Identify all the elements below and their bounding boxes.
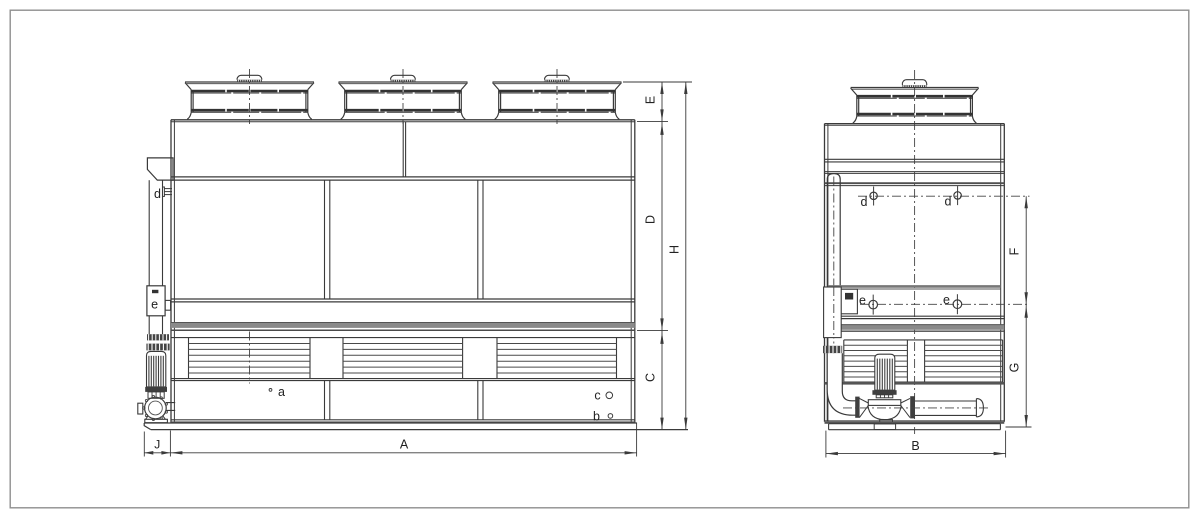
svg-text:B: B [911, 439, 919, 453]
svg-text:b: b [593, 410, 600, 424]
svg-text:C: C [644, 373, 658, 382]
svg-text:J: J [154, 438, 160, 452]
svg-text:d: d [861, 195, 868, 209]
svg-text:c: c [594, 389, 600, 403]
svg-text:F: F [1008, 247, 1022, 255]
svg-text:d: d [945, 195, 952, 209]
svg-text:A: A [400, 437, 409, 451]
svg-text:a: a [278, 385, 285, 399]
svg-text:H: H [668, 245, 682, 254]
svg-text:E: E [644, 96, 658, 104]
svg-text:e: e [151, 298, 158, 312]
svg-text:d: d [154, 187, 161, 201]
svg-text:e: e [943, 293, 950, 307]
svg-text:G: G [1008, 363, 1022, 373]
svg-text:D: D [644, 215, 658, 224]
svg-text:e: e [859, 294, 866, 308]
